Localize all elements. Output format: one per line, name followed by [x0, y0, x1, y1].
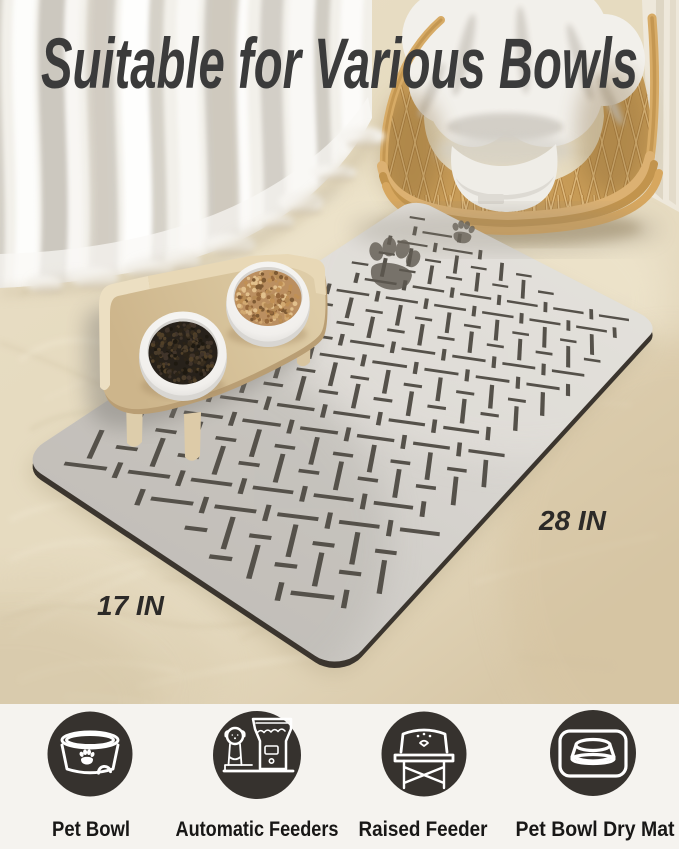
svg-text:28 IN: 28 IN	[538, 505, 607, 536]
svg-text:Raised Feeder: Raised Feeder	[359, 818, 488, 841]
svg-text:17 IN: 17 IN	[97, 590, 165, 621]
svg-text:Suitable for Various Bowls: Suitable for Various Bowls	[41, 25, 638, 104]
svg-text:Automatic Feeders: Automatic Feeders	[176, 818, 339, 841]
svg-text:Pet Bowl: Pet Bowl	[52, 818, 130, 841]
svg-text:Pet Bowl Dry Mat: Pet Bowl Dry Mat	[516, 818, 675, 841]
